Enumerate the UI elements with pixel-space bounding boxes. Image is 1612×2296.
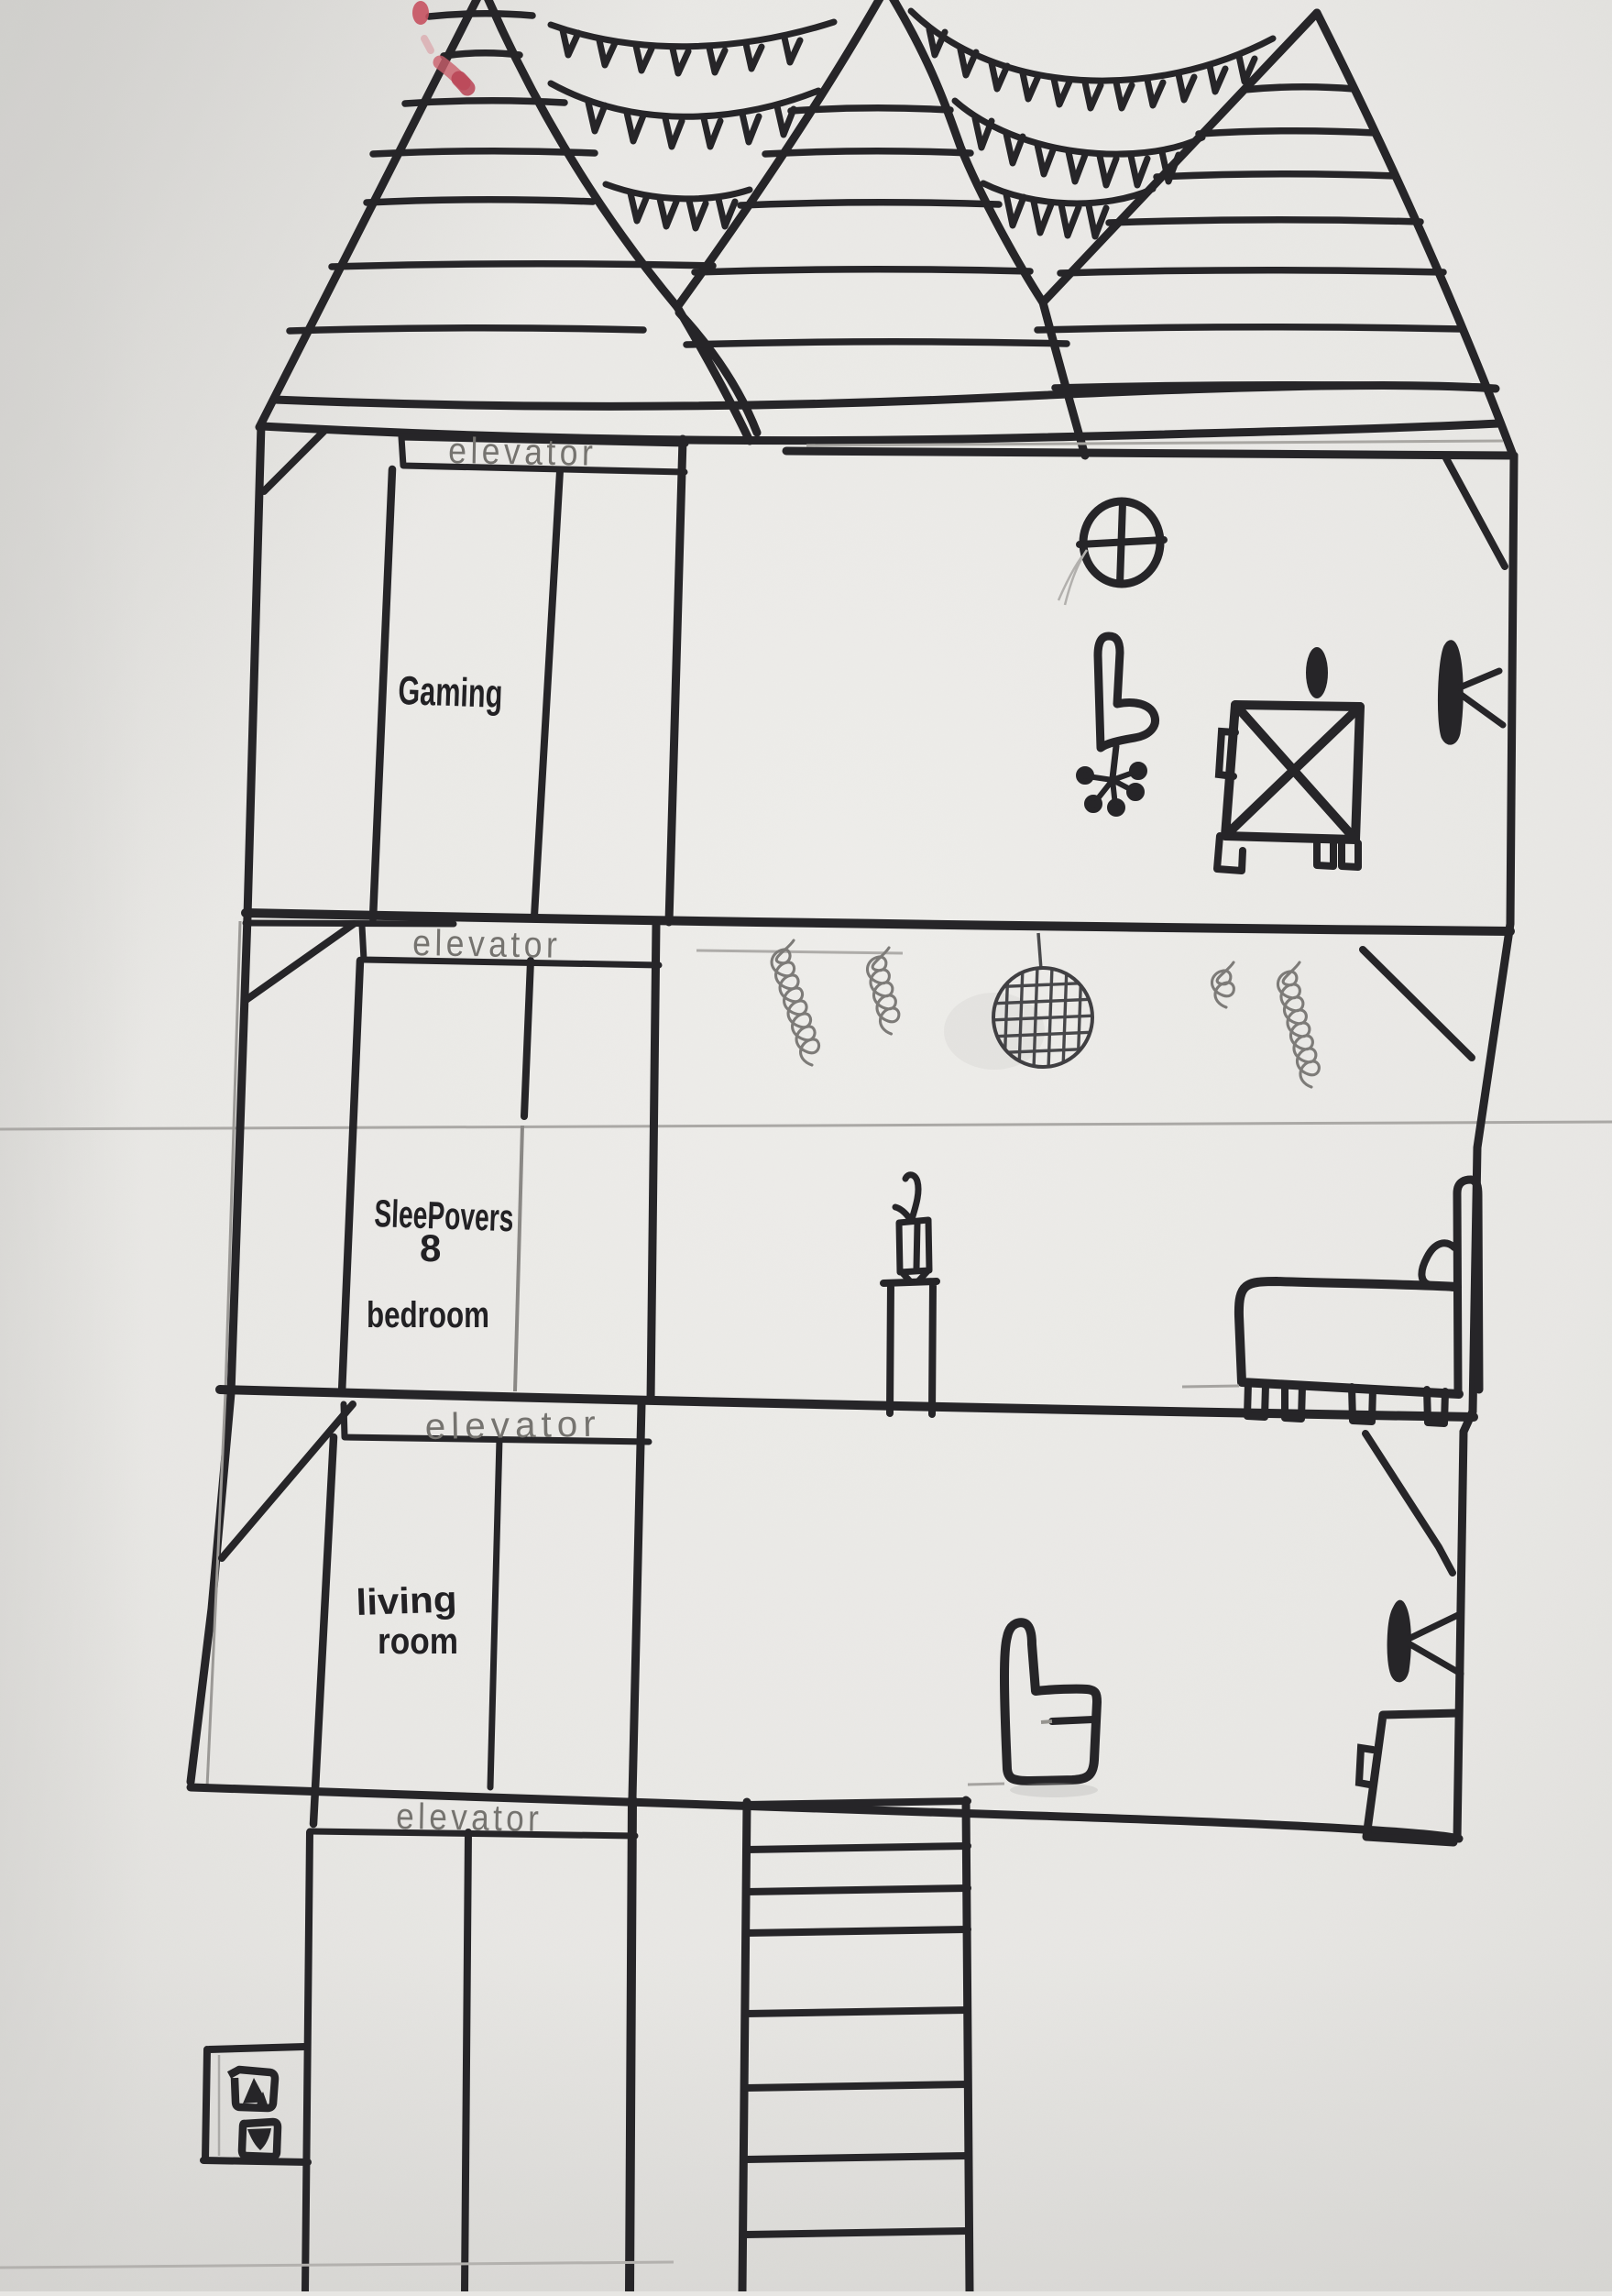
svg-text:room: room (378, 1621, 458, 1662)
svg-text:elevator: elevator (424, 1404, 601, 1447)
svg-text:SleePovers: SleePovers (374, 1192, 515, 1239)
svg-text:8: 8 (420, 1226, 441, 1269)
svg-text:living: living (356, 1579, 457, 1623)
svg-text:elevator: elevator (412, 923, 562, 966)
svg-text:elevator: elevator (448, 431, 598, 474)
svg-text:bedroom: bedroom (367, 1295, 489, 1335)
svg-text:Gaming: Gaming (398, 668, 504, 717)
